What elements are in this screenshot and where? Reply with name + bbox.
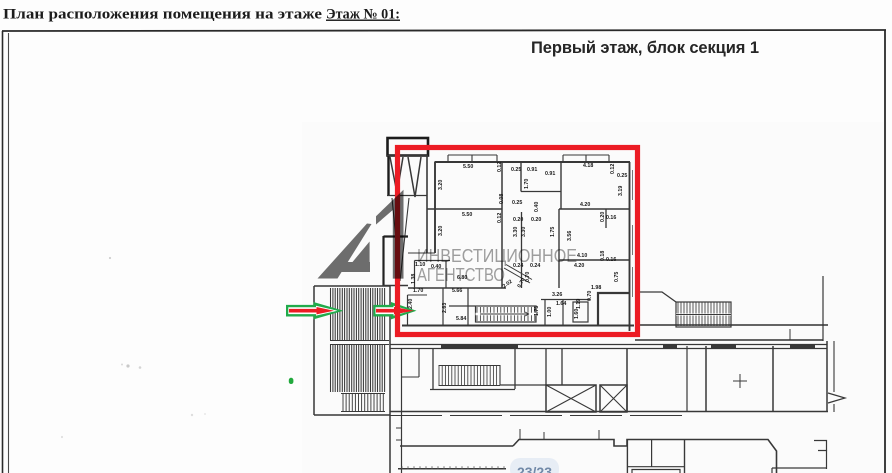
svg-text:2.40: 2.40: [408, 299, 414, 309]
svg-text:5.84: 5.84: [456, 316, 466, 322]
svg-text:1.64: 1.64: [556, 301, 566, 307]
svg-text:4.20: 4.20: [580, 202, 590, 208]
svg-text:5.50: 5.50: [463, 164, 473, 170]
svg-text:3.20: 3.20: [438, 226, 444, 236]
svg-text:0.12: 0.12: [497, 162, 503, 172]
svg-text:0.25: 0.25: [511, 167, 521, 173]
svg-text:1.75: 1.75: [550, 227, 556, 237]
svg-text:0.12: 0.12: [610, 164, 616, 174]
svg-text:3.20: 3.20: [438, 180, 444, 190]
svg-text:План расположения помещения на: План расположения помещения на этаже: [3, 7, 323, 23]
svg-text:3.26: 3.26: [552, 292, 562, 298]
svg-text:3.56: 3.56: [567, 231, 573, 241]
svg-text:1.70: 1.70: [413, 288, 423, 294]
svg-text:3.30: 3.30: [521, 227, 527, 237]
svg-text:1.19: 1.19: [576, 299, 582, 309]
svg-text:5.66: 5.66: [452, 288, 462, 294]
svg-text:0.91: 0.91: [545, 171, 555, 177]
svg-text:3.19: 3.19: [618, 186, 624, 196]
svg-text:1.60: 1.60: [574, 309, 580, 319]
svg-text:5.50: 5.50: [462, 212, 472, 218]
svg-text:1.00: 1.00: [547, 307, 553, 317]
svg-text:0.16: 0.16: [606, 215, 616, 221]
svg-text:0.08: 0.08: [499, 194, 505, 204]
svg-text:23/23: 23/23: [517, 464, 552, 473]
svg-text:1.70: 1.70: [524, 179, 530, 189]
svg-text:Этаж № 01:: Этаж № 01:: [326, 7, 400, 23]
svg-text:0.25: 0.25: [512, 200, 522, 206]
svg-text:1.98: 1.98: [591, 285, 601, 291]
svg-text:ИНВЕСТИЦИОННОЕ: ИНВЕСТИЦИОННОЕ: [417, 246, 577, 266]
svg-text:3.30: 3.30: [513, 227, 519, 237]
svg-text:0.40: 0.40: [534, 202, 540, 212]
svg-text:4.18: 4.18: [583, 163, 593, 169]
svg-text:0.75: 0.75: [614, 272, 620, 282]
svg-text:0.70: 0.70: [587, 291, 593, 301]
svg-text:Первый этаж, блок секция 1: Первый этаж, блок секция 1: [531, 39, 759, 57]
svg-text:0.20: 0.20: [531, 217, 541, 223]
svg-text:1.75: 1.75: [534, 306, 540, 316]
svg-text:АГЕНТСТВО: АГЕНТСТВО: [417, 265, 505, 285]
svg-text:0.16: 0.16: [606, 257, 616, 263]
svg-text:4.10: 4.10: [577, 253, 587, 259]
svg-text:0.25: 0.25: [617, 173, 627, 179]
svg-text:0.20: 0.20: [513, 217, 523, 223]
svg-text:0.91: 0.91: [527, 167, 537, 173]
svg-text:2.63: 2.63: [442, 303, 448, 313]
svg-text:0.12: 0.12: [497, 213, 503, 223]
